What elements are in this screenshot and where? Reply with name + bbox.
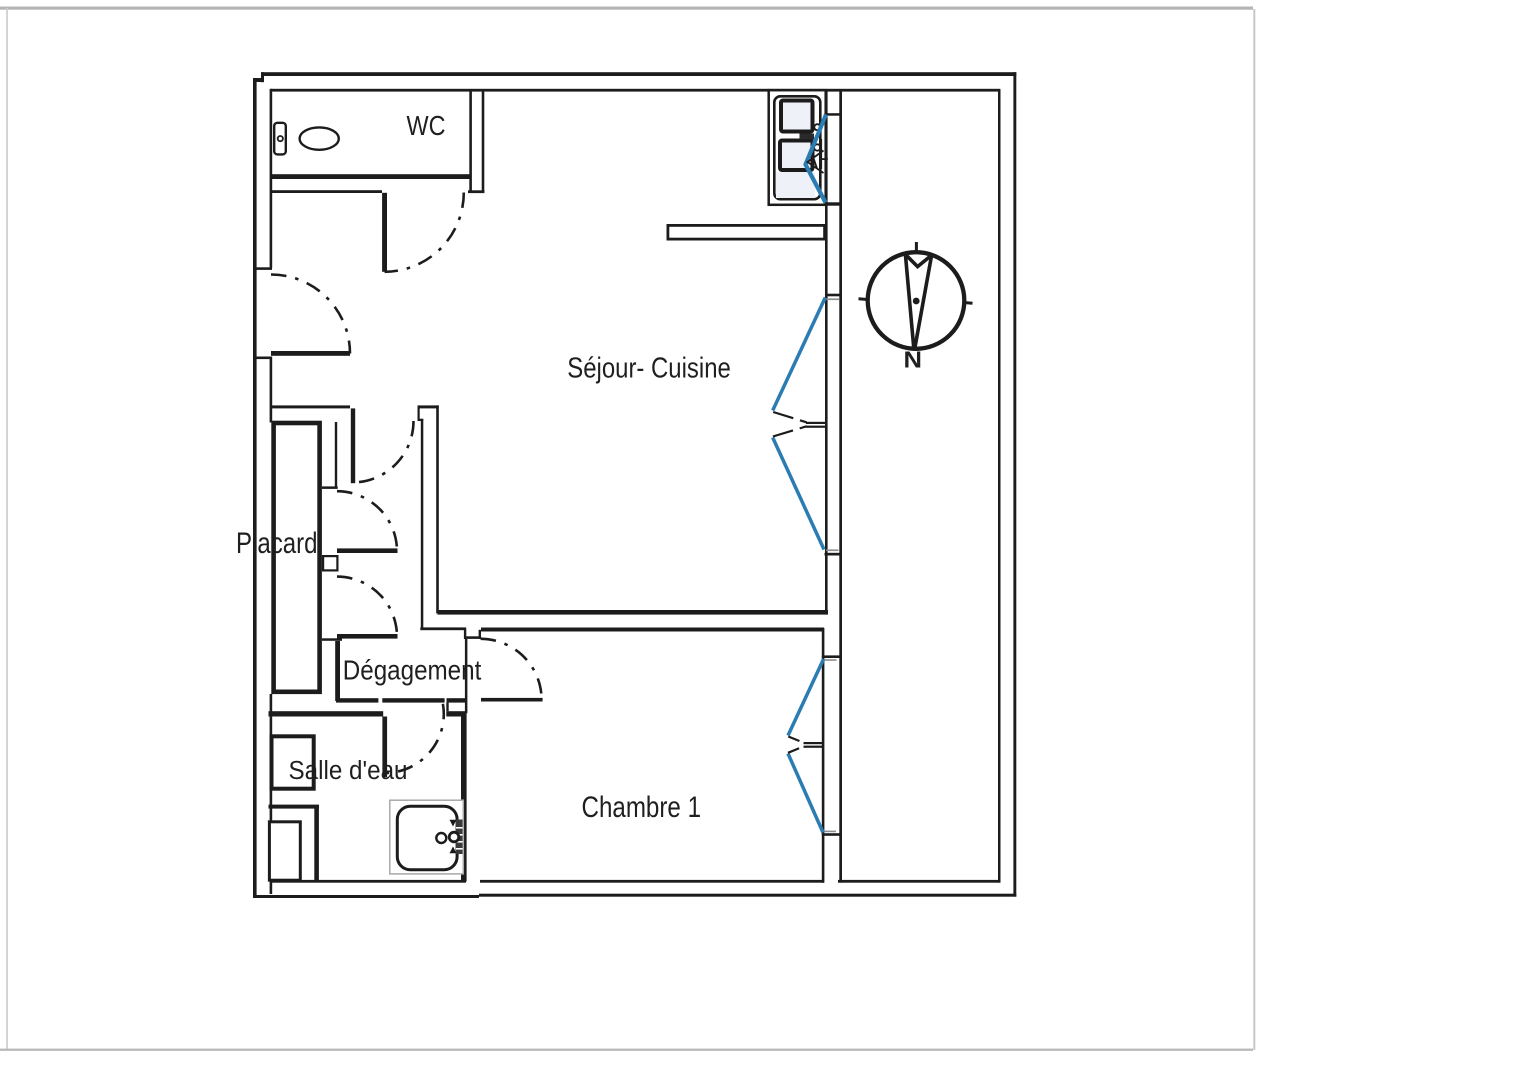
svg-text:Placard: Placard: [236, 527, 318, 560]
svg-text:Salle d'eau: Salle d'eau: [289, 757, 408, 785]
svg-text:N: N: [904, 347, 923, 373]
svg-text:Chambre 1: Chambre 1: [582, 791, 702, 824]
svg-text:Séjour- Cuisine: Séjour- Cuisine: [567, 353, 731, 385]
svg-text:Dégagement: Dégagement: [343, 655, 482, 686]
svg-text:WC: WC: [407, 110, 446, 141]
